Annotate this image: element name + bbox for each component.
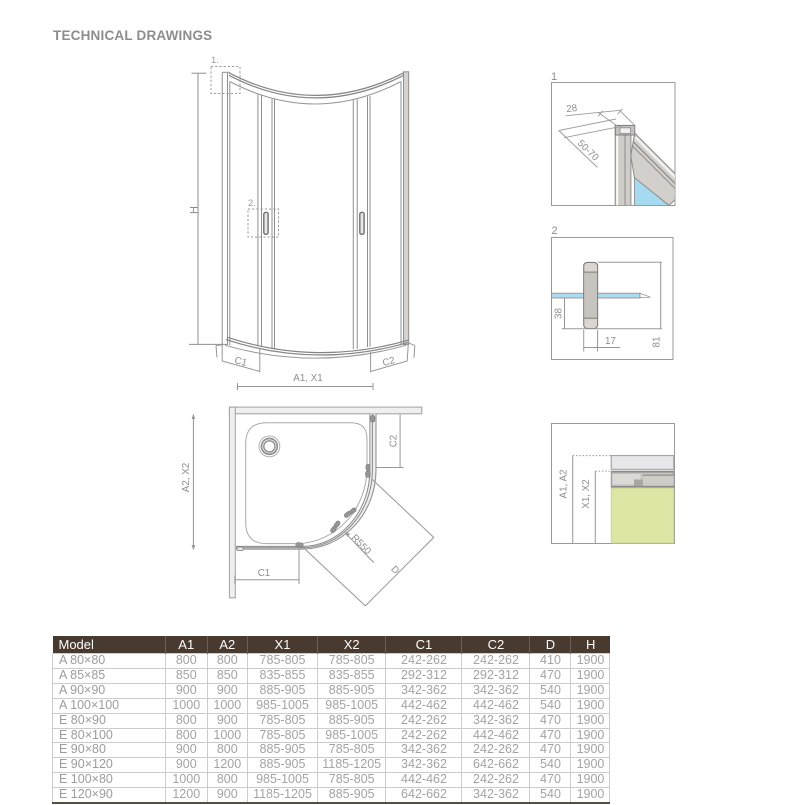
svg-text:A1, X1: A1, X1 <box>293 373 322 384</box>
svg-text:1: 1 <box>551 71 557 83</box>
svg-text:50-70: 50-70 <box>575 138 601 164</box>
svg-text:2: 2 <box>552 225 558 237</box>
svg-text:38: 38 <box>554 308 565 319</box>
svg-text:R550: R550 <box>349 533 374 558</box>
svg-text:2.: 2. <box>248 198 256 209</box>
svg-text:H: H <box>188 206 200 214</box>
svg-text:A2, X2: A2, X2 <box>181 463 192 492</box>
svg-text:C2: C2 <box>381 355 396 369</box>
svg-text:D: D <box>388 564 401 577</box>
svg-text:1.: 1. <box>211 55 219 66</box>
svg-text:81: 81 <box>652 337 663 348</box>
svg-text:C2: C2 <box>389 435 400 448</box>
svg-text:17: 17 <box>605 336 616 347</box>
svg-text:28: 28 <box>566 103 579 115</box>
svg-text:A1, A2: A1, A2 <box>559 470 570 499</box>
svg-text:X1, X2: X1, X2 <box>581 479 592 508</box>
svg-text:C1: C1 <box>233 355 248 369</box>
svg-text:C1: C1 <box>258 568 271 579</box>
